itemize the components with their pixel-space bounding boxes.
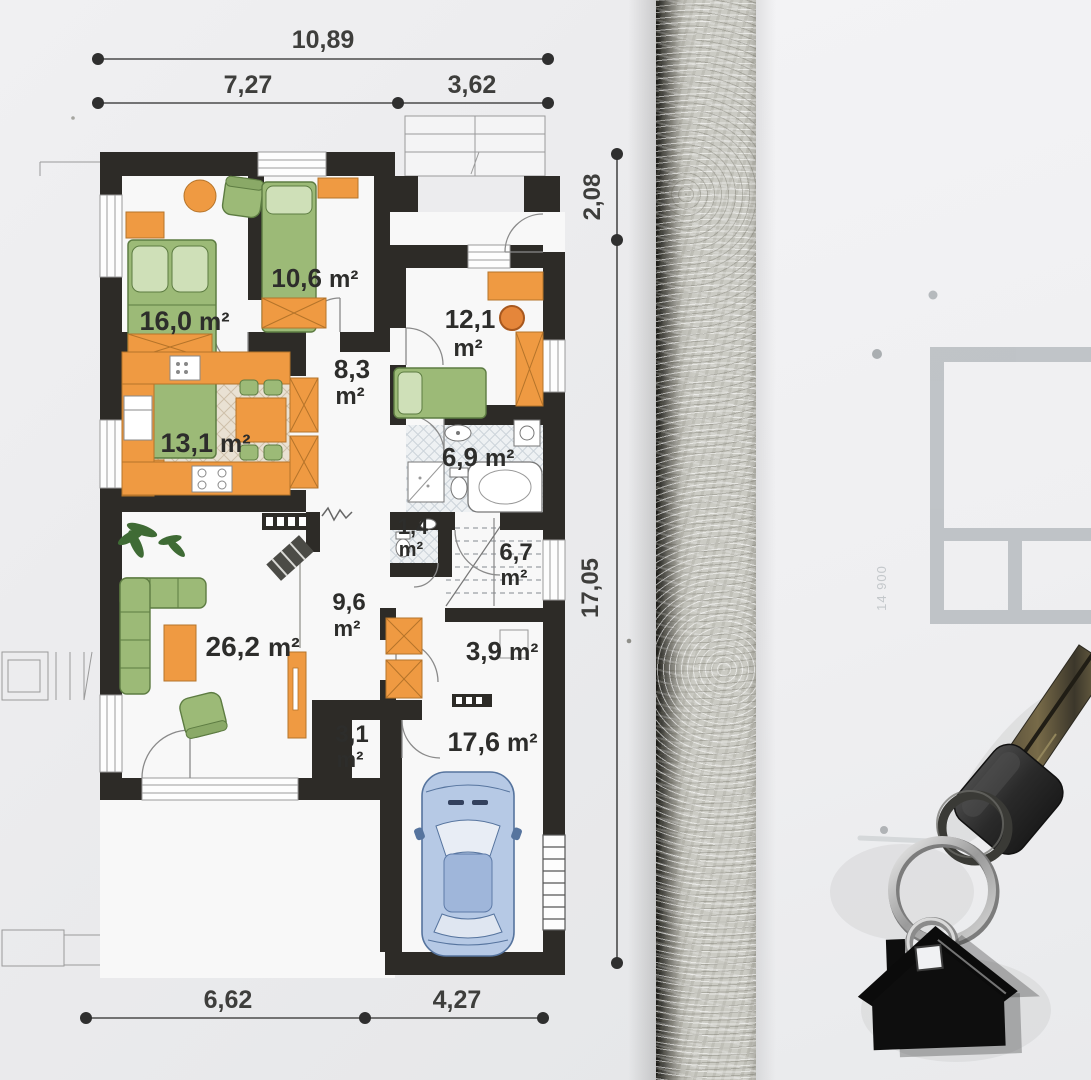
room-label-hall: 8,3: [334, 354, 370, 384]
room-label-garage: 17,6: [447, 727, 500, 757]
bathroom-sink: [445, 425, 471, 441]
room-unit-garage: m²: [507, 729, 538, 757]
faint-dimension-dot: [929, 291, 938, 300]
room-label-stairs: 6,7: [499, 539, 532, 566]
room-unit-living: m²: [268, 632, 300, 662]
floor-plan-drawing: 10,89 7,27 3,62 2,08 17,05 6,62 4,27: [0, 0, 662, 1080]
faint-dimension-dot: [880, 826, 888, 834]
room-unit-hall: m²: [335, 383, 364, 410]
dimension-top-left: 7,27: [224, 71, 273, 99]
house-keychain: [855, 922, 1041, 1058]
room-unit-storage: m²: [509, 639, 538, 666]
dimension-top-total: 10,89: [292, 26, 355, 54]
kitchen-sink: [170, 356, 200, 380]
room-label-12-1: 12,1: [445, 304, 496, 334]
faint-dimension-dot: [872, 349, 882, 359]
room-label-vestibule: 3,1: [335, 721, 368, 748]
entrance-porch-steps: [405, 116, 545, 176]
terrace-left: [2, 162, 100, 700]
armchair: [221, 176, 264, 219]
dimension-right-top: 2,08: [579, 174, 606, 221]
room-unit-corridor: m²: [334, 616, 361, 641]
coffee-table: [164, 625, 196, 681]
washing-machine: [514, 420, 540, 446]
room-label-kitchen: 13,1: [160, 428, 213, 458]
garage-door: [543, 835, 565, 930]
toilet: [450, 468, 468, 499]
stool: [500, 306, 524, 330]
dimension-bottom-left: 6,62: [204, 986, 253, 1014]
room-unit-12-1: m²: [453, 335, 482, 362]
room-unit-stairs: m²: [501, 565, 528, 590]
car: [413, 772, 523, 956]
shelf: [318, 178, 358, 198]
room-unit-bedroom: m²: [199, 308, 230, 336]
single-bed: [394, 368, 486, 418]
faint-floor-plan-outline: [930, 347, 1091, 624]
room-label-corridor: 9,6: [332, 589, 365, 616]
room-unit-10-6: m²: [329, 266, 358, 293]
right-sheet-drawing: 14 900: [756, 0, 1091, 1080]
dimension-top-right: 3,62: [448, 71, 497, 99]
stove: [192, 466, 232, 492]
paper-edge-shadow: [628, 0, 658, 1080]
concrete-divider: [656, 0, 756, 1080]
room-label-storage: 3,9: [466, 636, 502, 666]
tv-board: [288, 652, 306, 738]
desk: [488, 272, 543, 300]
nightstand: [126, 212, 164, 238]
paper-speck: [71, 116, 75, 120]
dimension-bottom-right: 4,27: [433, 986, 482, 1014]
room-unit-kitchen: m²: [220, 430, 251, 458]
photo-of-floor-plan: 10,89 7,27 3,62 2,08 17,05 6,62 4,27: [0, 0, 1091, 1080]
shower: [408, 462, 444, 502]
room-label-bedroom: 16,0: [139, 306, 192, 336]
round-side-table: [184, 180, 216, 212]
room-unit-bathroom: m²: [485, 445, 514, 472]
room-label-bathroom: 6,9: [442, 442, 478, 472]
keychain-hole: [915, 945, 942, 970]
room-unit-vestibule: m²: [337, 747, 364, 772]
wardrobe: [262, 298, 326, 328]
wardrobe: [516, 332, 543, 406]
room-label-wc: 1,4: [398, 514, 429, 539]
room-label-living: 26,2: [206, 631, 261, 662]
fridge: [124, 396, 152, 440]
room-label-10-6: 10,6: [271, 263, 322, 293]
faint-scale-text: 14 900: [874, 565, 889, 611]
room-unit-wc: m²: [399, 539, 424, 561]
dimension-right-main: 17,05: [577, 558, 604, 618]
